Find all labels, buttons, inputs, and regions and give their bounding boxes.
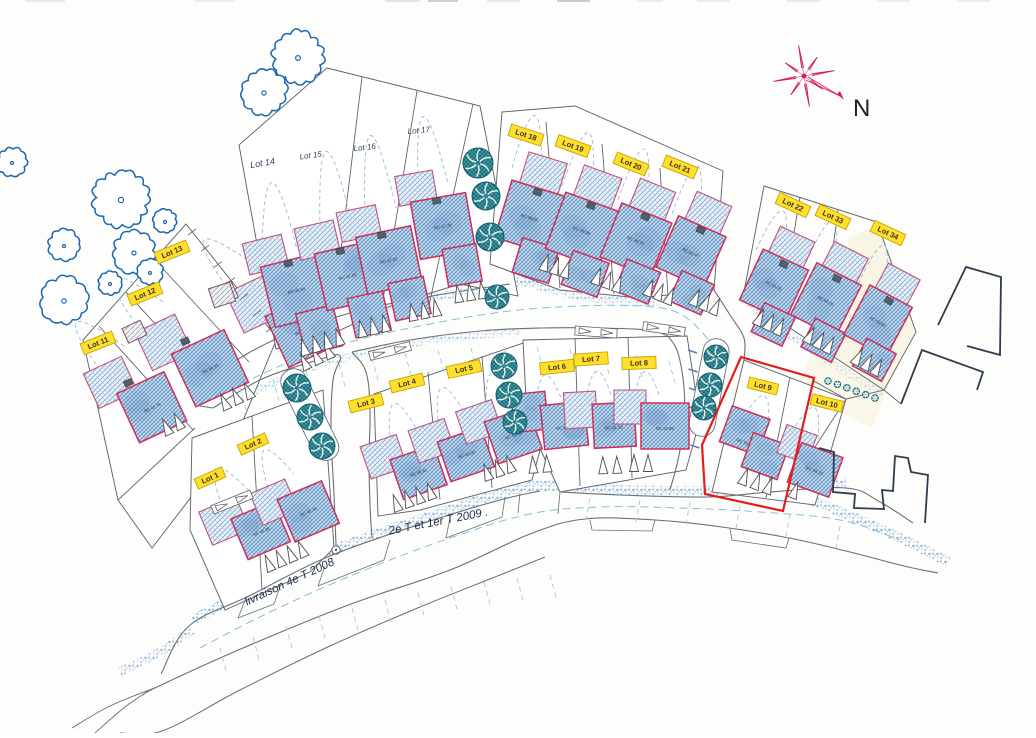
svg-text:N: N: [853, 95, 870, 122]
svg-text:Lot 7: Lot 7: [582, 354, 601, 364]
svg-text:RC 51.30: RC 51.30: [605, 425, 624, 431]
svg-text:Lot 6: Lot 6: [548, 362, 567, 373]
svg-text:Lot 8: Lot 8: [630, 358, 648, 368]
svg-text:RC 51.80: RC 51.80: [656, 426, 674, 431]
